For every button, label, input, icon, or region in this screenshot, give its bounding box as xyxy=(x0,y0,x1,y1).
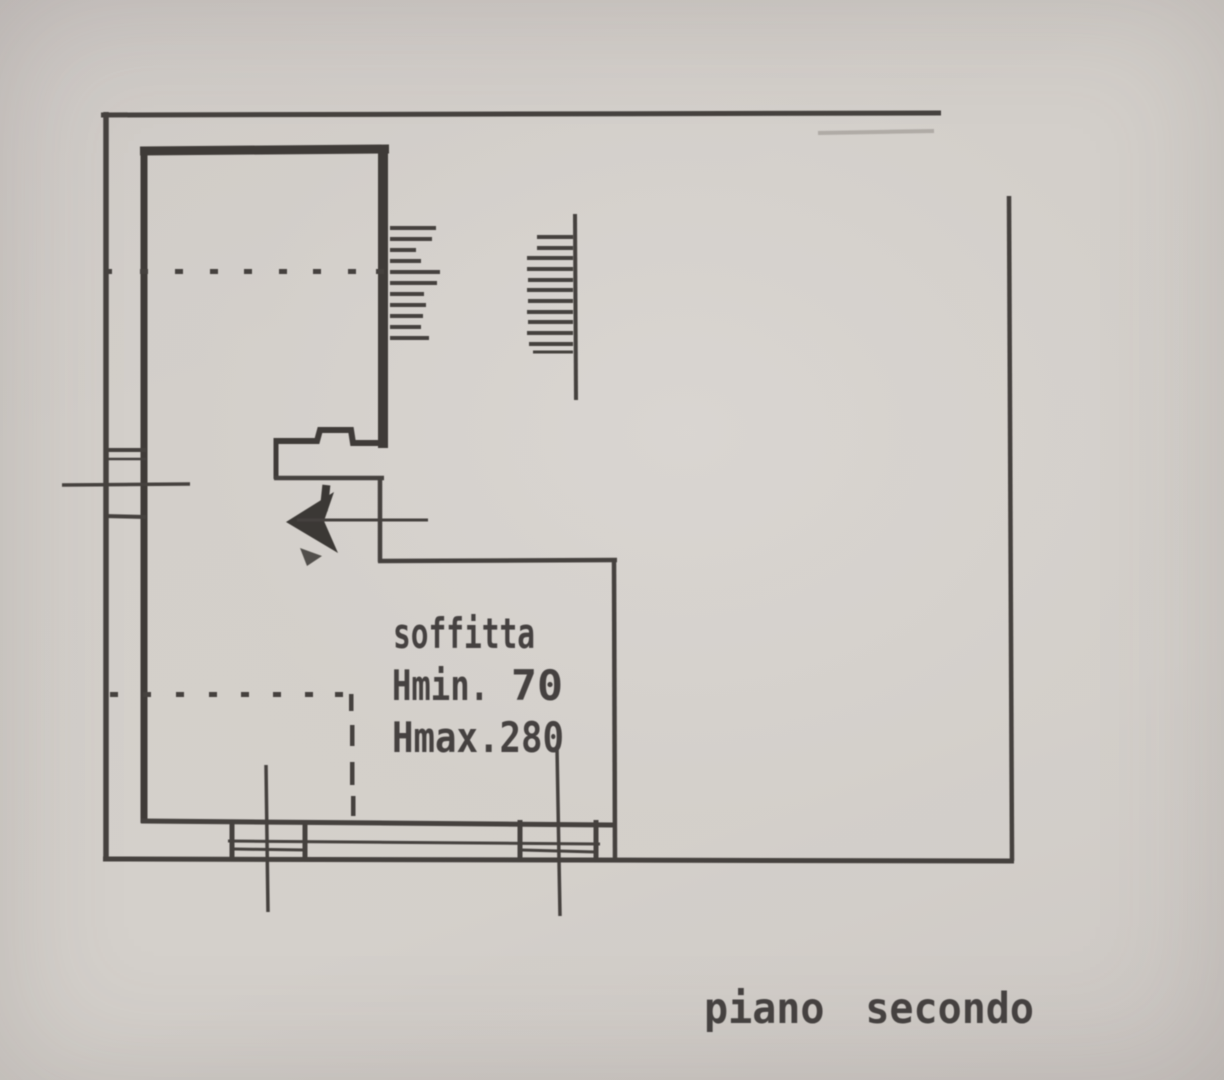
height-max-label: Hmax.280 xyxy=(392,713,564,762)
floor-plan-drawing: soffitta Hmin. 70 Hmax.280 piano secondo xyxy=(0,0,1224,1080)
window-centerline xyxy=(557,747,560,916)
height-min-value: 70 xyxy=(511,661,563,710)
dotted-height-line-upper xyxy=(104,269,384,274)
left-wall-window xyxy=(62,450,190,517)
window-centerline xyxy=(62,484,190,485)
room-name-label: soffitta xyxy=(393,609,535,658)
bottom-wall-and-windows xyxy=(141,747,613,916)
stair-hatch-left-flight xyxy=(390,228,440,338)
room-annotation: soffitta Hmin. 70 Hmax.280 xyxy=(392,609,564,762)
window-centerline xyxy=(266,765,268,912)
stair-hatch-right-flight xyxy=(527,214,576,400)
stair-direction-arrow-icon xyxy=(286,485,428,566)
height-min-label: Hmin. xyxy=(392,661,489,710)
floor-title-label: piano secondo xyxy=(704,984,1034,1034)
scanned-floor-plan-page: soffitta Hmin. 70 Hmax.280 piano secondo xyxy=(0,0,1224,1080)
